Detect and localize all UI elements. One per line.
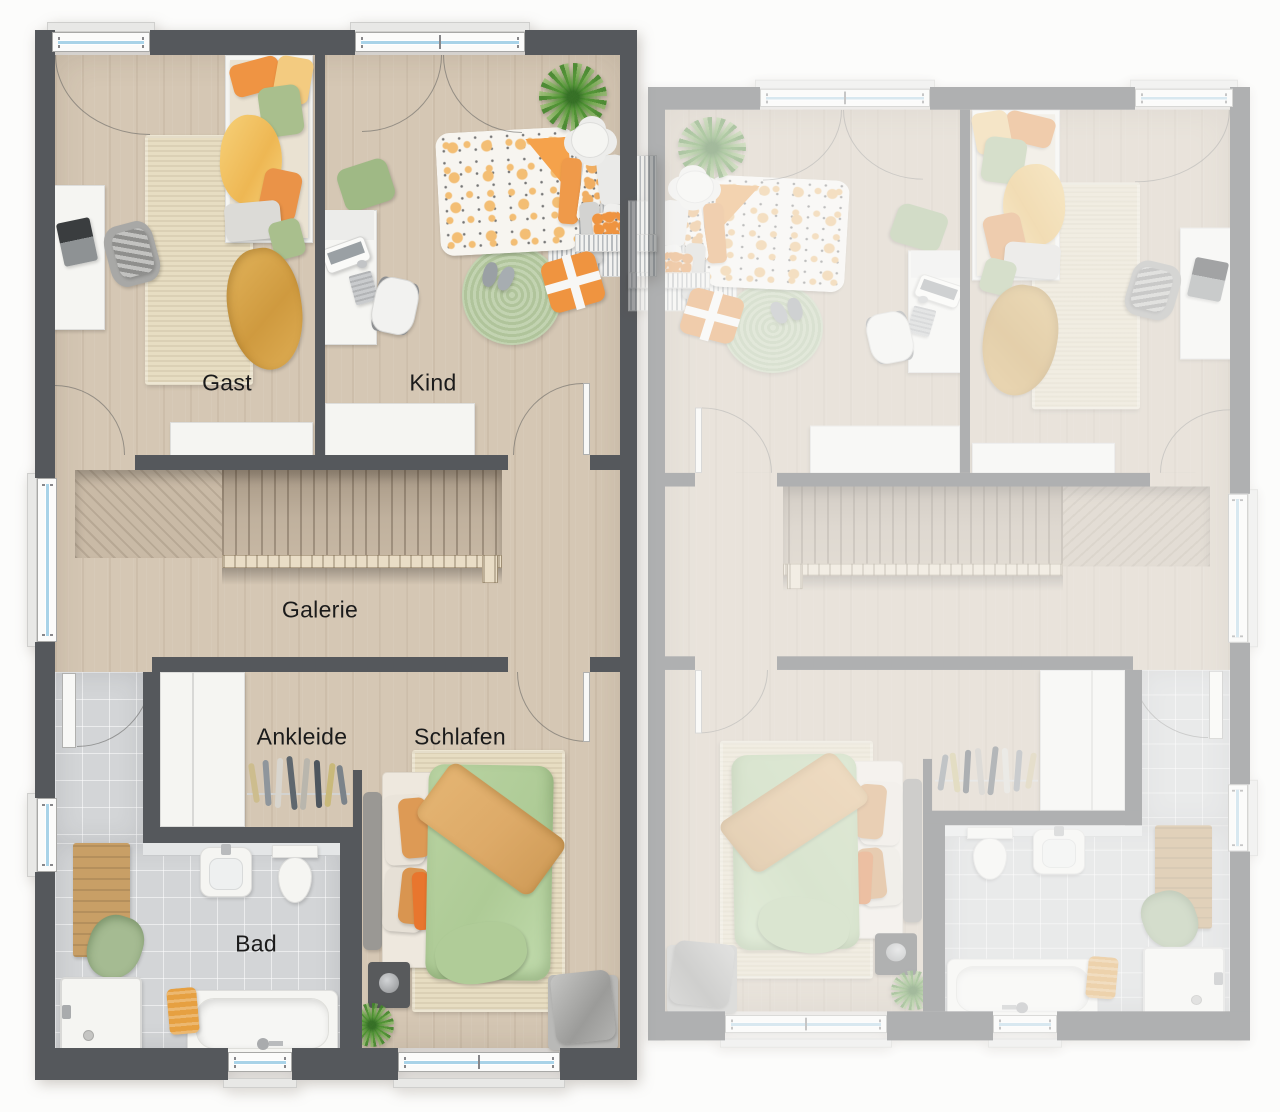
outer-wall-left [1230,87,1250,494]
outer-wall-bottom [648,1011,725,1040]
wall-rooms-galerie [135,455,508,470]
schlafen-window [398,1052,560,1072]
gast-sideboard [170,422,313,457]
schlafen-bench-blanket [669,940,736,1009]
schlafen-door-leaf [583,672,590,742]
wall-ankleide-south [923,811,1142,826]
bathtub-towel-orange [1085,956,1119,1000]
outer-wall-left [35,30,55,478]
washbasin-bowl [209,858,243,890]
wall-rooms-galerie [777,473,1150,487]
window-sill [223,1078,297,1088]
plant-icon [678,117,746,179]
window-sill [755,80,935,89]
outer-wall-bottom [35,1048,228,1080]
stair-landing [1063,487,1210,567]
gallery-railing [783,564,1063,576]
gast-window [52,32,150,52]
window-sill [1248,489,1258,647]
wall-ankleide-schlafen [923,759,932,813]
outer-wall-left [35,642,55,798]
gast-sideboard [972,443,1115,475]
outer-wall-top [150,30,355,55]
bad-side-window [37,798,57,872]
window-sill [27,793,37,877]
washbasin-faucet [1054,826,1064,836]
mouse-icon [357,260,367,268]
window-sill [350,22,530,32]
wall-galerie-south [152,657,508,672]
wall-rooms-galerie-stub [590,455,620,470]
bad-door-leaf [62,673,76,748]
outer-wall-top [930,87,1135,110]
room-label: Schlafen [414,724,506,751]
shower-drain [1191,995,1202,1005]
kind-window [760,89,930,107]
bathtub-faucet-spout [1002,1005,1016,1010]
wall-gast-kind [960,110,970,473]
schlafen-headboard [363,792,382,950]
ankleide-wardrobe [1040,670,1125,811]
wall-gast-kind [315,55,325,455]
shower-faucet [1214,972,1223,985]
kind-window [355,32,525,52]
railing-shadow [783,576,1063,591]
wall-galerie-south [777,656,1133,670]
kind-door-leaf [695,408,702,473]
window-sill [988,1039,1062,1048]
outer-wall-bottom [1057,1011,1250,1040]
wall-bad-schlafen [340,841,362,1048]
stair-landing [75,470,222,558]
galerie-window [1228,494,1248,643]
schlafen-nightstand-knob [379,973,399,993]
window-sill [1248,780,1258,856]
railing-shadow [222,568,502,585]
plant-icon [539,63,607,131]
shower-tray [60,977,142,1053]
outer-wall-bottom [887,1011,993,1040]
clothes-rail [935,780,1038,782]
bad-bottom-window [993,1015,1057,1033]
gallery-railing [222,555,502,568]
shower-tray [1143,947,1225,1016]
wall-galerie-south-stub [590,657,620,672]
kind-round-rug [723,282,823,373]
room-label: Gast [202,370,252,397]
bad-bottom-window [228,1052,292,1072]
shower-drain [83,1030,94,1041]
bathtub-faucet [1016,1002,1028,1013]
outer-wall-bottom [292,1048,398,1080]
bad-door-leaf [1209,671,1223,739]
kind-desk-upper [911,250,962,277]
kind-sideboard [810,426,960,475]
window-sill [47,22,155,32]
ankleide-wardrobe [160,672,245,827]
window-sill [720,1039,892,1048]
outer-wall-bottom [560,1048,637,1080]
wall-bad-ankleide [143,672,160,843]
schlafen-nightstand-knob [886,943,906,961]
kind-sideboard [325,403,475,457]
shower-faucet [62,1005,71,1019]
kind-pillow-ticking [628,272,710,288]
galerie-window [37,478,57,642]
party-wall-right [620,30,637,1080]
bad-side-window [1228,784,1248,851]
bathtub-faucet-spout [269,1041,283,1046]
washbasin-bowl [1042,839,1076,868]
mouse-icon [918,296,928,303]
outer-wall-left [1230,643,1250,785]
gallery-railing-return [482,555,498,583]
wall-bad-schlafen [923,823,945,1011]
unit-right-mirrored: Gast Kind Galerie [648,87,1250,1040]
window-sill [1130,80,1238,89]
schlafen-bench-blanket [550,969,617,1045]
window-sill [393,1078,565,1088]
room-label: Ankleide [257,724,348,751]
ankleide-wardrobe-divider [192,672,194,827]
washbasin-faucet [221,844,231,855]
window-sill [27,473,37,647]
staircase-treads [222,470,502,558]
unit-left: Gast Kind Galerie [35,30,637,1080]
room-label: Kind [409,370,456,397]
wall-ankleide-schlafen [353,770,362,830]
kind-flower-side-table [676,171,714,204]
floor-plan-canvas: Gast Kind Galerie [0,0,1280,1112]
wall-rooms-galerie-stub [665,473,695,487]
wall-ankleide-south [143,827,362,843]
wall-bad-ankleide [1125,670,1142,825]
schlafen-headboard [903,779,922,922]
clothes-rail [247,793,350,795]
kind-door-leaf [583,383,590,455]
bathtub-faucet [257,1038,269,1050]
kind-flower-side-table [571,122,609,158]
bathtub-towel-orange [166,987,200,1035]
wall-galerie-south-stub [665,656,695,670]
room-label: Galerie [282,597,358,624]
ankleide-wardrobe-divider [1091,670,1093,811]
gallery-railing-return [787,564,803,589]
gast-window [1135,89,1233,107]
party-wall-right [648,87,665,1040]
staircase-treads [783,487,1063,567]
room-label: Bad [235,931,277,958]
kind-desk-upper [323,210,374,240]
schlafen-door-leaf [695,670,702,734]
schlafen-window [725,1015,887,1033]
